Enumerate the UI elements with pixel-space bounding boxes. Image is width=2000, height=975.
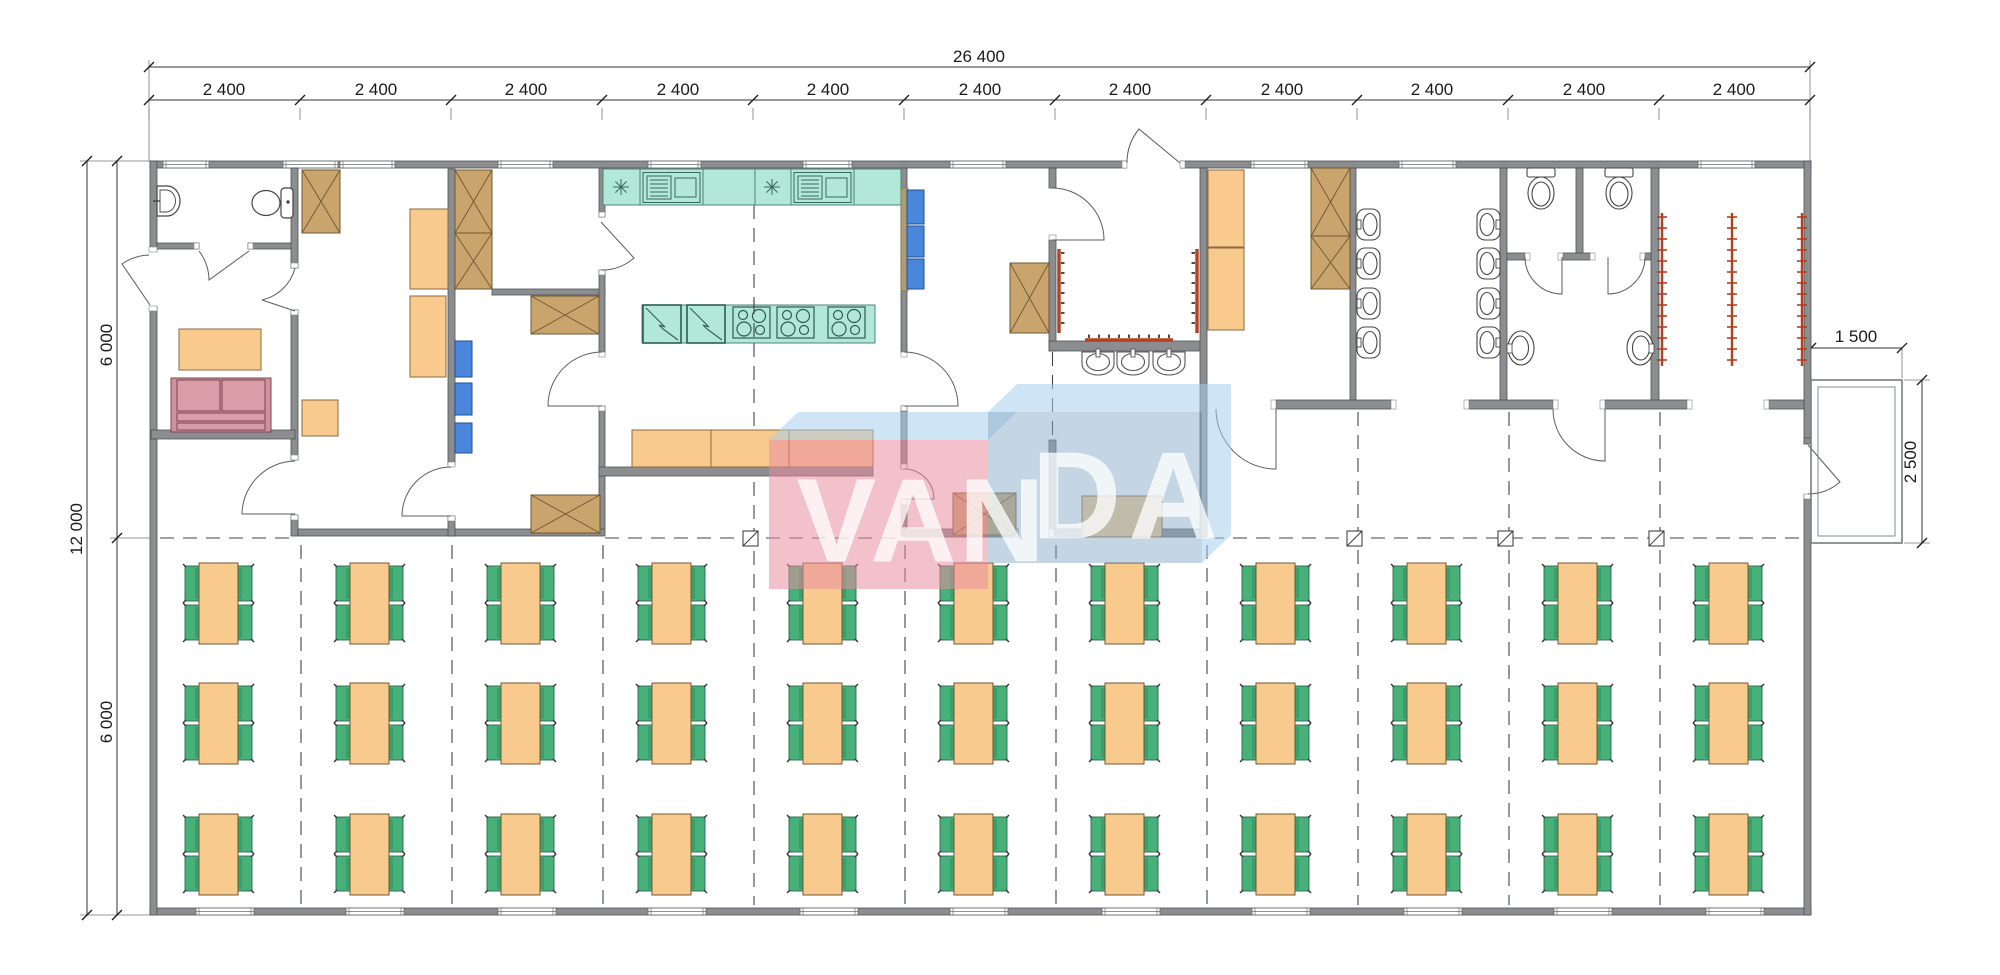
svg-text:2 400: 2 400 [1411,80,1454,99]
svg-text:26 400: 26 400 [953,47,1005,66]
svg-text:6 000: 6 000 [97,701,116,744]
svg-text:2 400: 2 400 [807,80,850,99]
svg-text:2 400: 2 400 [355,80,398,99]
svg-text:2 400: 2 400 [1713,80,1756,99]
svg-text:2 500: 2 500 [1901,441,1920,484]
svg-text:2 400: 2 400 [1563,80,1606,99]
svg-text:1 500: 1 500 [1835,327,1878,346]
svg-text:2 400: 2 400 [203,80,246,99]
svg-text:2 400: 2 400 [1261,80,1304,99]
svg-text:2 400: 2 400 [959,80,1002,99]
svg-text:6 000: 6 000 [97,324,116,367]
svg-text:DA: DA [1032,428,1226,565]
svg-text:2 400: 2 400 [657,80,700,99]
svg-text:12 000: 12 000 [67,503,86,555]
svg-text:2 400: 2 400 [1109,80,1152,99]
svg-text:VAN: VAN [797,455,1048,587]
svg-text:2 400: 2 400 [505,80,548,99]
